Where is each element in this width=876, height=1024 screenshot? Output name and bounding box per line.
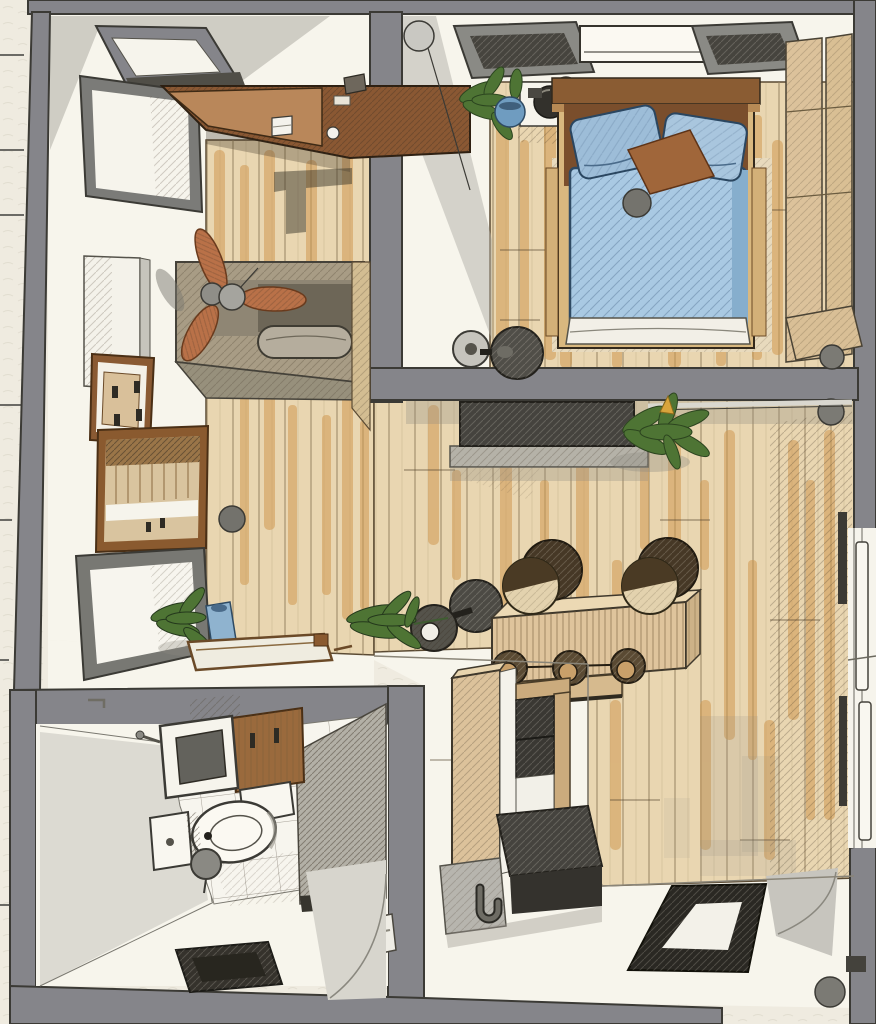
bed [546,78,772,352]
daybed-cushion [258,326,352,358]
smudge-2 [742,756,778,852]
fan-hub [219,284,245,310]
wood-framed-mirror [96,426,208,552]
wall-right-lower [850,842,876,1024]
bed-dot [623,189,651,217]
smudge-4 [700,840,796,876]
bathroom [36,694,396,1000]
wall-dot-right-1 [820,345,844,369]
cup [327,127,339,139]
storage-box [344,74,366,94]
floor-plan-svg [0,0,876,1024]
floor-plan-illustration [0,0,876,1024]
wall-bathroom-left [10,690,36,1012]
wall-bathroom-right [388,686,424,1012]
duvet-fold-right [732,170,748,330]
bed-rail-right [752,168,766,336]
wall-bedroom-divider [370,12,402,402]
sheet-fold [566,318,750,344]
bed-rail-left [546,168,558,336]
smudge-3 [664,798,690,858]
corridor-column-dot [219,506,245,532]
door-panel-1 [856,542,868,690]
small-tray [334,96,350,105]
right-floor-shading [770,410,852,882]
door-track-1 [838,512,847,604]
skylight-bedroom-left [454,22,594,78]
wall-right-upper [854,0,876,532]
door-panel-2 [859,702,871,840]
wall-top [28,0,876,14]
column-dot-bottom-right [815,977,845,1007]
door-track-2 [839,696,847,806]
drain-mat [176,942,282,992]
wall-bedroom-lower [370,368,858,400]
blue-pot [495,97,525,127]
headboard [552,78,760,104]
